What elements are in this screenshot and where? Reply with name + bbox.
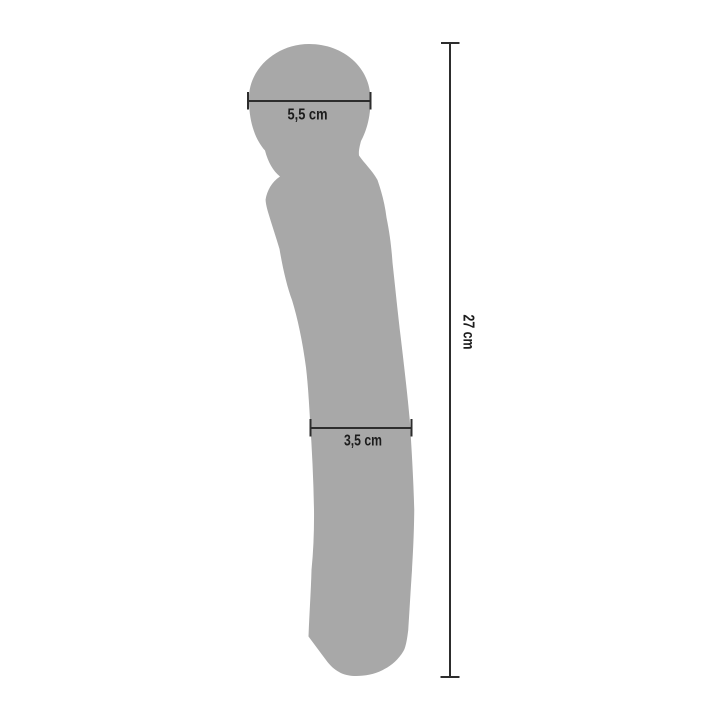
svg-text:5,5 cm: 5,5 cm (288, 107, 328, 124)
svg-text:27 cm: 27 cm (460, 315, 477, 350)
svg-text:3,5 cm: 3,5 cm (344, 433, 382, 450)
